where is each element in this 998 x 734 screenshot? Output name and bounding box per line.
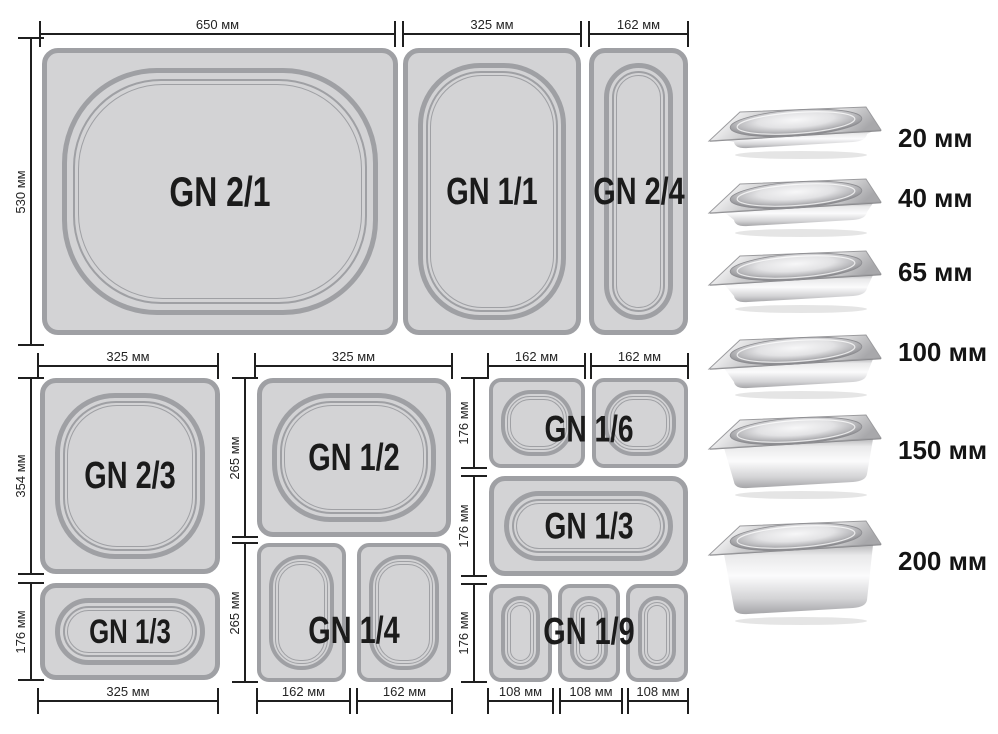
pan-gn-1-9-c — [626, 584, 688, 682]
dim-label: 325 мм — [103, 685, 152, 699]
pan-label-gn-1-6: GN 1/6 — [544, 411, 633, 448]
dim-height-176mm-left: 176 мм — [30, 583, 32, 680]
dim-label: 354 мм — [14, 451, 28, 500]
depth-label-100mm: 100 мм — [898, 339, 987, 365]
dim-label: 176 мм — [457, 501, 471, 550]
dim-width-162mm-right-a: 162 мм — [488, 365, 585, 367]
dim-width-162mm-mid-b: 162 мм — [357, 700, 452, 702]
pan-photo-graphic — [706, 100, 882, 162]
pan-photo-graphic — [706, 408, 882, 502]
pan-label: GN 1/2 — [308, 439, 399, 477]
pan-gn-2-3: GN 2/3 — [40, 378, 220, 574]
gn-pan-size-infographic: 650 мм 325 мм 162 мм 530 мм GN 2/1 GN 1/… — [0, 0, 998, 734]
photo-pan-65mm — [706, 244, 882, 316]
pan-label: GN 2/3 — [84, 457, 175, 495]
depth-label-150mm: 150 мм — [898, 437, 987, 463]
pan-gn-1-2: GN 1/2 — [257, 378, 451, 537]
depth-label-40mm: 40 мм — [898, 185, 973, 211]
pan-inner-line — [644, 602, 670, 664]
pan-label: GN 2/4 — [593, 173, 684, 211]
dim-label: 176 мм — [457, 398, 471, 447]
dim-width-325mm-left-bottom: 325 мм — [38, 700, 218, 702]
pan-gn-1-3-left: GN 1/3 — [40, 583, 220, 680]
photo-pan-20mm — [706, 100, 882, 162]
pan-photo-graphic — [706, 328, 882, 402]
dim-width-650mm: 650 мм — [40, 33, 395, 35]
pan-photo-graphic — [706, 244, 882, 316]
pan-inner-line — [647, 605, 667, 661]
dim-label: 530 мм — [14, 167, 28, 216]
dim-height-265mm-lower: 265 мм — [244, 543, 246, 682]
dim-label: 162 мм — [614, 18, 663, 32]
pan-inner-ring — [501, 596, 540, 670]
pan-gn-2-4: GN 2/4 — [589, 48, 688, 335]
dim-width-162mm-right-b: 162 мм — [591, 365, 688, 367]
dim-label: 162 мм — [615, 350, 664, 364]
pan-inner-ring — [638, 596, 676, 670]
dim-label: 108 мм — [633, 685, 682, 699]
dim-label: 176 мм — [14, 607, 28, 656]
dim-width-108mm-b: 108 мм — [560, 700, 622, 702]
pan-photo-graphic — [706, 172, 882, 240]
dim-label: 108 мм — [496, 685, 545, 699]
dim-label: 325 мм — [103, 350, 152, 364]
pan-inner-line — [510, 605, 531, 661]
dim-height-176mm-a: 176 мм — [473, 378, 475, 468]
dim-width-162mm-mid-a: 162 мм — [257, 700, 350, 702]
photo-pan-100mm — [706, 328, 882, 402]
dim-width-325mm-top: 325 мм — [403, 33, 581, 35]
pan-label: GN 2/1 — [169, 171, 270, 213]
dim-width-162mm-top: 162 мм — [589, 33, 688, 35]
dim-label: 162 мм — [380, 685, 429, 699]
pan-gn-1-3-right: GN 1/3 — [489, 476, 688, 576]
dim-label: 162 мм — [279, 685, 328, 699]
pan-inner-line — [507, 602, 534, 664]
dim-height-176mm-b: 176 мм — [473, 476, 475, 576]
dim-label: 325 мм — [467, 18, 516, 32]
pan-gn-2-1: GN 2/1 — [42, 48, 398, 335]
pan-label-gn-1-4: GN 1/4 — [308, 612, 399, 650]
dim-label: 325 мм — [329, 350, 378, 364]
depth-label-200mm: 200 мм — [898, 548, 987, 574]
depth-label-65mm: 65 мм — [898, 259, 973, 285]
dim-height-265mm-upper: 265 мм — [244, 378, 246, 537]
photo-pan-40mm — [706, 172, 882, 240]
dim-label: 265 мм — [228, 588, 242, 637]
dim-width-108mm-c: 108 мм — [628, 700, 688, 702]
dim-label: 650 мм — [193, 18, 242, 32]
pan-gn-1-1: GN 1/1 — [403, 48, 581, 335]
pan-photo-graphic — [706, 514, 882, 628]
pan-label-gn-1-9: GN 1/9 — [543, 613, 634, 651]
dim-label: 162 мм — [512, 350, 561, 364]
dim-width-108mm-a: 108 мм — [488, 700, 553, 702]
photo-pan-150mm — [706, 408, 882, 502]
dim-height-530mm: 530 мм — [30, 38, 32, 345]
dim-width-325mm-mid-top: 325 мм — [255, 365, 452, 367]
dim-label: 265 мм — [228, 433, 242, 482]
pan-label: GN 1/1 — [446, 173, 537, 211]
dim-label: 108 мм — [566, 685, 615, 699]
depth-label-20mm: 20 мм — [898, 125, 973, 151]
pan-label: GN 1/3 — [544, 508, 633, 545]
photo-pan-200mm — [706, 514, 882, 628]
dim-height-354mm: 354 мм — [30, 378, 32, 574]
dim-height-176mm-c: 176 мм — [473, 584, 475, 682]
dim-label: 176 мм — [457, 608, 471, 657]
pan-label: GN 1/3 — [89, 615, 171, 649]
dim-width-325mm-left-top: 325 мм — [38, 365, 218, 367]
